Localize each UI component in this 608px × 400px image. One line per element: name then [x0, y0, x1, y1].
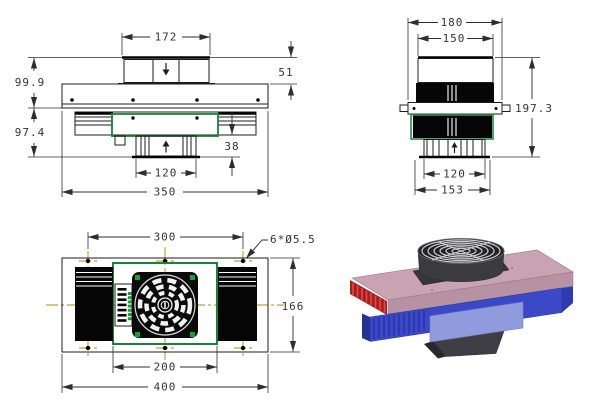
- dim-plan-hole-callout: 6*Ø5.5: [270, 233, 316, 246]
- dim-plan-depth: 166: [282, 300, 305, 313]
- dim-plan-cold-block-width: 200: [154, 361, 177, 374]
- dim-front-overall-width: 350: [154, 186, 177, 199]
- dim-front-fan-height: 51: [278, 66, 293, 79]
- mounting-hole: [241, 346, 245, 350]
- mounting-hole: [163, 346, 167, 350]
- hole-callout-leader: [246, 240, 268, 259]
- airflow-up-arrow-icon: [452, 142, 458, 153]
- fan-guard-grille-icon: [422, 240, 500, 262]
- side-view: 180 150 197.3 120 153: [400, 16, 553, 197]
- dim-front-lower-height: 97.4: [15, 126, 46, 139]
- front-cold-block-outline: [112, 114, 218, 136]
- dim-side-outlet-width: 120: [443, 168, 466, 181]
- airflow-up-arrow-icon: [163, 141, 170, 153]
- dim-front-outlet-width: 120: [155, 167, 178, 180]
- front-cable-notch: [115, 136, 125, 145]
- front-view: 172 51 99.9 97.4 38: [15, 30, 297, 199]
- airflow-down-arrow-icon: [163, 63, 170, 76]
- side-fan-body: [418, 59, 493, 83]
- side-hot-fins: [416, 83, 494, 103]
- plan-view: 300 6*Ø5.5 166 200 400: [46, 230, 316, 394]
- dim-plan-hole-spacing: 300: [154, 231, 177, 244]
- side-mounting-plate: [408, 103, 502, 115]
- plan-right-heatsink: [218, 267, 257, 341]
- front-fin-band: [75, 112, 256, 135]
- dim-plan-overall-length: 400: [154, 381, 177, 394]
- side-view-geometry: [400, 58, 510, 158]
- dim-side-flange-width: 180: [441, 16, 464, 29]
- plan-connector: [115, 284, 132, 326]
- dim-front-outlet-height: 38: [224, 140, 239, 153]
- plan-left-heatsink: [75, 267, 113, 341]
- mounting-hole: [241, 259, 245, 263]
- drawing-canvas: 172 51 99.9 97.4 38: [0, 0, 608, 400]
- dim-front-fan-width: 172: [155, 31, 178, 44]
- plan-view-geometry: [62, 258, 268, 352]
- mounting-hole: [86, 346, 90, 350]
- plan-fan: [132, 272, 198, 338]
- dim-side-base-width: 153: [441, 184, 464, 197]
- technical-drawing-page: 172 51 99.9 97.4 38: [0, 0, 608, 400]
- render-3d-view: [350, 239, 573, 359]
- dim-front-upper-height: 99.9: [15, 76, 46, 89]
- mounting-hole: [86, 259, 90, 263]
- dim-side-overall-height: 197.3: [515, 102, 553, 115]
- dim-side-fan-width: 150: [443, 32, 466, 45]
